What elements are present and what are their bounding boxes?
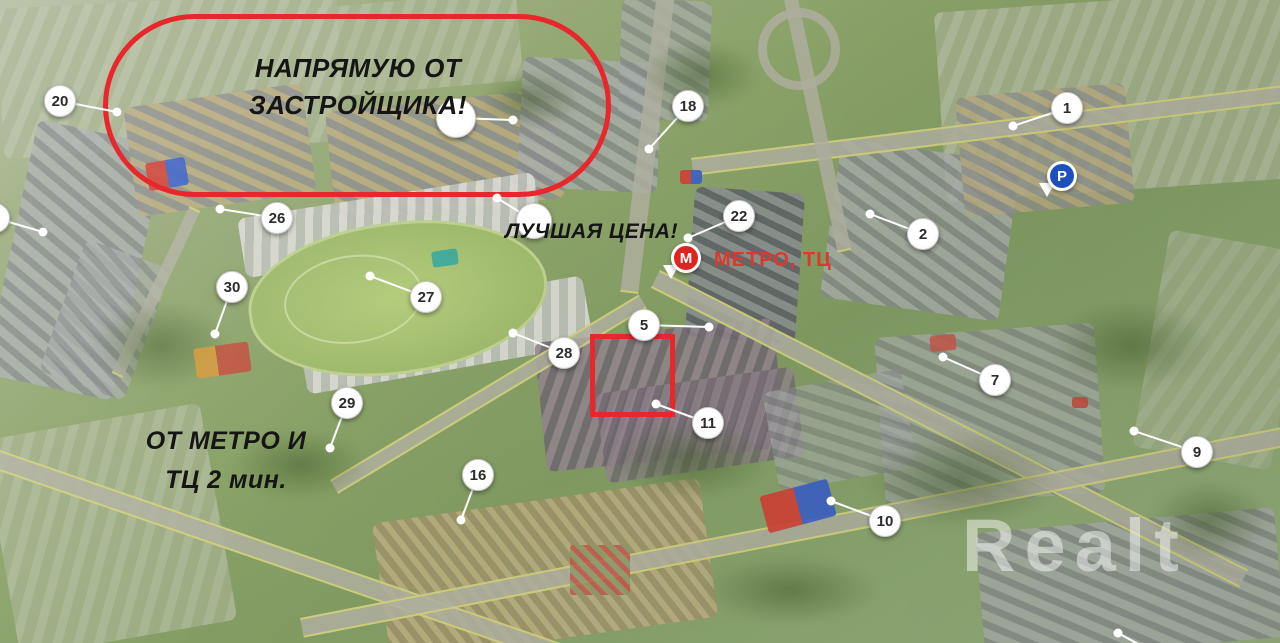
tree-cluster <box>1150 480 1270 560</box>
map-marker-10[interactable]: 10 <box>869 505 901 537</box>
banner-line2: ЗАСТРОЙЩИКА! <box>186 87 530 124</box>
metro-m-glyph: М <box>674 246 698 270</box>
map-landmark-accent <box>929 334 957 353</box>
map-marker-30[interactable]: 30 <box>216 271 248 303</box>
map-marker-1[interactable]: 1 <box>1051 92 1083 124</box>
building-cluster <box>955 83 1135 217</box>
metro-mall-label: МЕТРО, ТЦ <box>714 249 832 272</box>
map-marker-7[interactable]: 7 <box>979 364 1011 396</box>
tree-cluster <box>1050 300 1210 390</box>
map-marker-2[interactable]: 2 <box>907 218 939 250</box>
aerial-masterplan-map: 202630272829165111822217910 М P НАПРЯМУЮ… <box>0 0 1280 643</box>
map-marker-11[interactable]: 11 <box>692 407 724 439</box>
map-marker-27[interactable]: 27 <box>410 281 442 313</box>
banner-line1: НАПРЯМУЮ ОТ <box>186 50 530 87</box>
map-landmark-accent <box>1072 397 1088 408</box>
metro-walk-caption: ОТ МЕТРО И ТЦ 2 мин. <box>116 422 336 500</box>
parking-p-glyph: P <box>1050 164 1074 188</box>
building-highlight-square <box>590 334 675 417</box>
map-landmark-accent <box>570 545 630 595</box>
metro-walk-line1: ОТ МЕТРО И <box>116 422 336 461</box>
map-marker-unlabeled <box>0 203 10 233</box>
map-marker-18[interactable]: 18 <box>672 90 704 122</box>
metro-walk-line2: ТЦ 2 мин. <box>116 461 336 500</box>
map-marker-16[interactable]: 16 <box>462 459 494 491</box>
map-marker-29[interactable]: 29 <box>331 387 363 419</box>
tree-cluster <box>610 420 770 500</box>
map-marker-20[interactable]: 20 <box>44 85 76 117</box>
developer-banner-text: НАПРЯМУЮ ОТ ЗАСТРОЙЩИКА! <box>186 50 530 124</box>
tree-cluster <box>700 555 880 625</box>
best-price-caption: ЛУЧШАЯ ЦЕНА! <box>505 220 685 244</box>
map-landmark-accent <box>680 170 702 184</box>
map-marker-28[interactable]: 28 <box>548 337 580 369</box>
map-landmark-accent <box>193 341 252 378</box>
map-marker-26[interactable]: 26 <box>261 202 293 234</box>
map-marker-22[interactable]: 22 <box>723 200 755 232</box>
road-interchange <box>758 8 840 90</box>
map-marker-5[interactable]: 5 <box>628 309 660 341</box>
map-marker-9[interactable]: 9 <box>1181 436 1213 468</box>
